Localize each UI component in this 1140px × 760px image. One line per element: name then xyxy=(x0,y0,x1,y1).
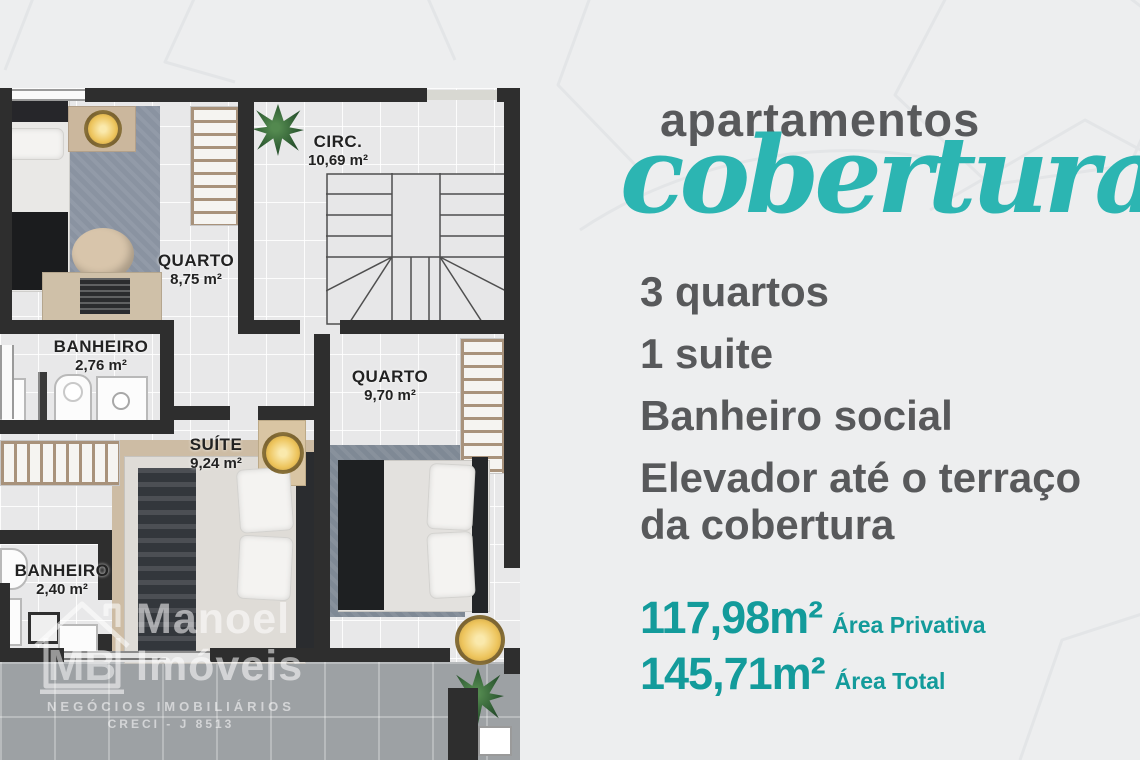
area-row-privativa: 117,98m² Área Privativa xyxy=(640,592,986,644)
wall xyxy=(0,420,174,434)
wall xyxy=(85,88,427,102)
svg-text:MB: MB xyxy=(48,641,116,690)
feature-item: 3 quartos xyxy=(640,268,1120,315)
wall xyxy=(238,88,254,334)
feature-item: 1 suite xyxy=(640,330,1120,377)
wall xyxy=(258,406,318,420)
shower-drain xyxy=(112,392,130,410)
suite-pillow xyxy=(236,466,294,534)
wall xyxy=(504,648,520,674)
bedroom1-pillow xyxy=(6,128,64,160)
laptop-icon xyxy=(80,278,130,314)
wall xyxy=(314,334,330,648)
suite-pillow xyxy=(236,535,293,602)
bedroom1-lamp-icon xyxy=(84,110,122,148)
wall xyxy=(160,406,230,420)
room-label-circ: CIRC. 10,69 m² xyxy=(308,131,368,171)
window xyxy=(0,345,14,419)
room-label-quarto1: QUARTO 8,75 m² xyxy=(158,250,234,290)
terrace-bench xyxy=(478,726,512,756)
staircase xyxy=(326,173,506,325)
agency-creci: CRECI - J 8513 xyxy=(36,717,306,731)
entry-threshold xyxy=(427,90,497,100)
feature-item: Banheiro social xyxy=(640,392,1120,439)
area-row-total: 145,71m² Área Total xyxy=(640,648,986,700)
window xyxy=(12,89,85,101)
wall xyxy=(0,88,12,334)
poster: CIRC. 10,69 m² QUARTO 8,75 m² BANHEIRO 2… xyxy=(0,0,1140,760)
bathroom1-mirror xyxy=(38,372,47,426)
area-figures: 117,98m² Área Privativa 145,71m² Área To… xyxy=(640,592,986,704)
wall xyxy=(0,320,174,334)
bedroom2-pillow xyxy=(426,463,475,531)
terrace-planter-wall xyxy=(448,688,478,760)
room-label-quarto2: QUARTO 9,70 m² xyxy=(352,366,428,406)
agency-tagline: NEGÓCIOS IMOBILIÁRIOS xyxy=(36,699,306,714)
area-label: Área Privativa xyxy=(832,612,985,639)
wall xyxy=(340,320,520,334)
bedroom2-lamp-icon xyxy=(455,615,505,665)
room-label-banheiro1: BANHEIRO 2,76 m² xyxy=(54,336,149,376)
feature-list: 3 quartos 1 suite Banheiro social Elevad… xyxy=(640,268,1120,563)
hall-wardrobe xyxy=(0,440,120,486)
bedroom1-wardrobe xyxy=(190,106,240,226)
room-label-suite: SUÍTE 9,24 m² xyxy=(190,434,243,474)
area-value: 145,71m² xyxy=(640,648,825,700)
wall xyxy=(0,530,112,544)
wall xyxy=(238,320,300,334)
agency-logo-icon: MB xyxy=(30,594,134,694)
agency-name: Manoel Imóveis xyxy=(136,596,303,690)
bedroom2-pillow xyxy=(426,531,475,599)
feature-item: Elevador até o terraço da cobertura xyxy=(640,454,1120,548)
area-label: Área Total xyxy=(835,668,946,695)
wall xyxy=(504,88,520,568)
toilet-lid xyxy=(63,382,83,402)
floor-plan: CIRC. 10,69 m² QUARTO 8,75 m² BANHEIRO 2… xyxy=(0,0,520,760)
area-value: 117,98m² xyxy=(640,592,822,644)
bedroom2-blanket xyxy=(338,460,384,610)
bedroom2-wardrobe xyxy=(460,338,506,474)
suite-lamp-icon xyxy=(262,432,304,474)
heading-script-title: coberturas xyxy=(620,112,1140,237)
